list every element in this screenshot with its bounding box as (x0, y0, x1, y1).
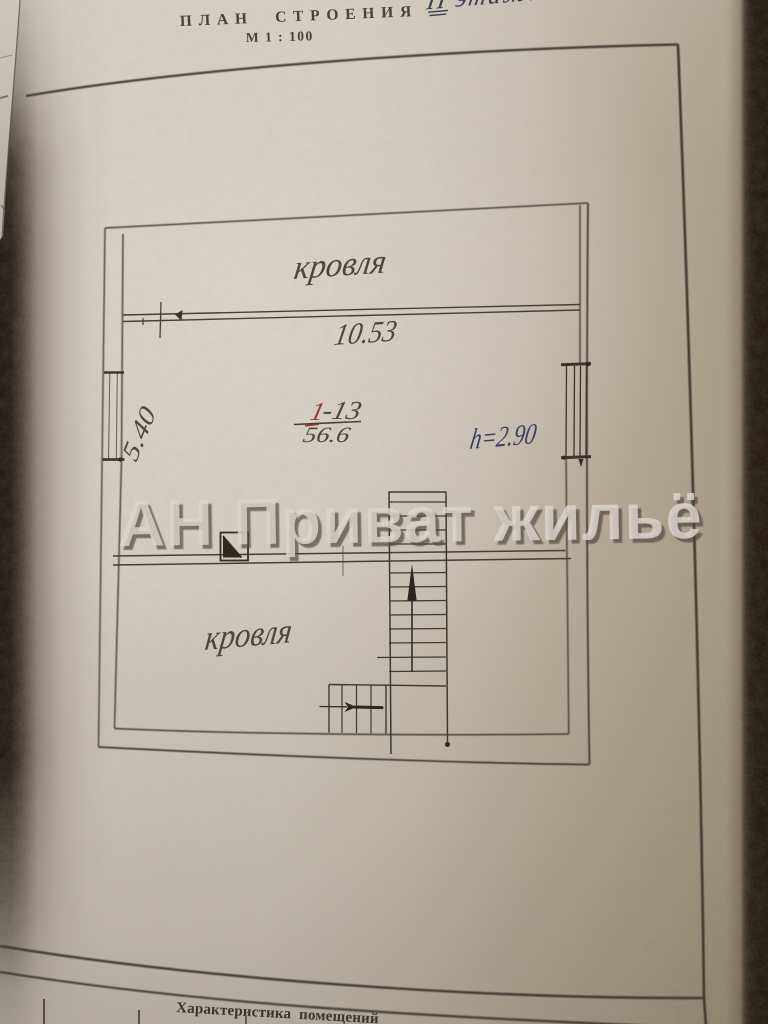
svg-text:56.6: 56.6 (301, 422, 354, 447)
svg-text:кровля: кровля (292, 243, 389, 287)
svg-text:АН Приват жильё: АН Приват жильё (117, 479, 702, 560)
svg-text:10.53: 10.53 (332, 314, 400, 352)
svg-text:h=2.90: h=2.90 (468, 418, 539, 456)
svg-text:кровля: кровля (203, 610, 295, 658)
svg-text:М 1 : 100: М 1 : 100 (246, 28, 314, 45)
